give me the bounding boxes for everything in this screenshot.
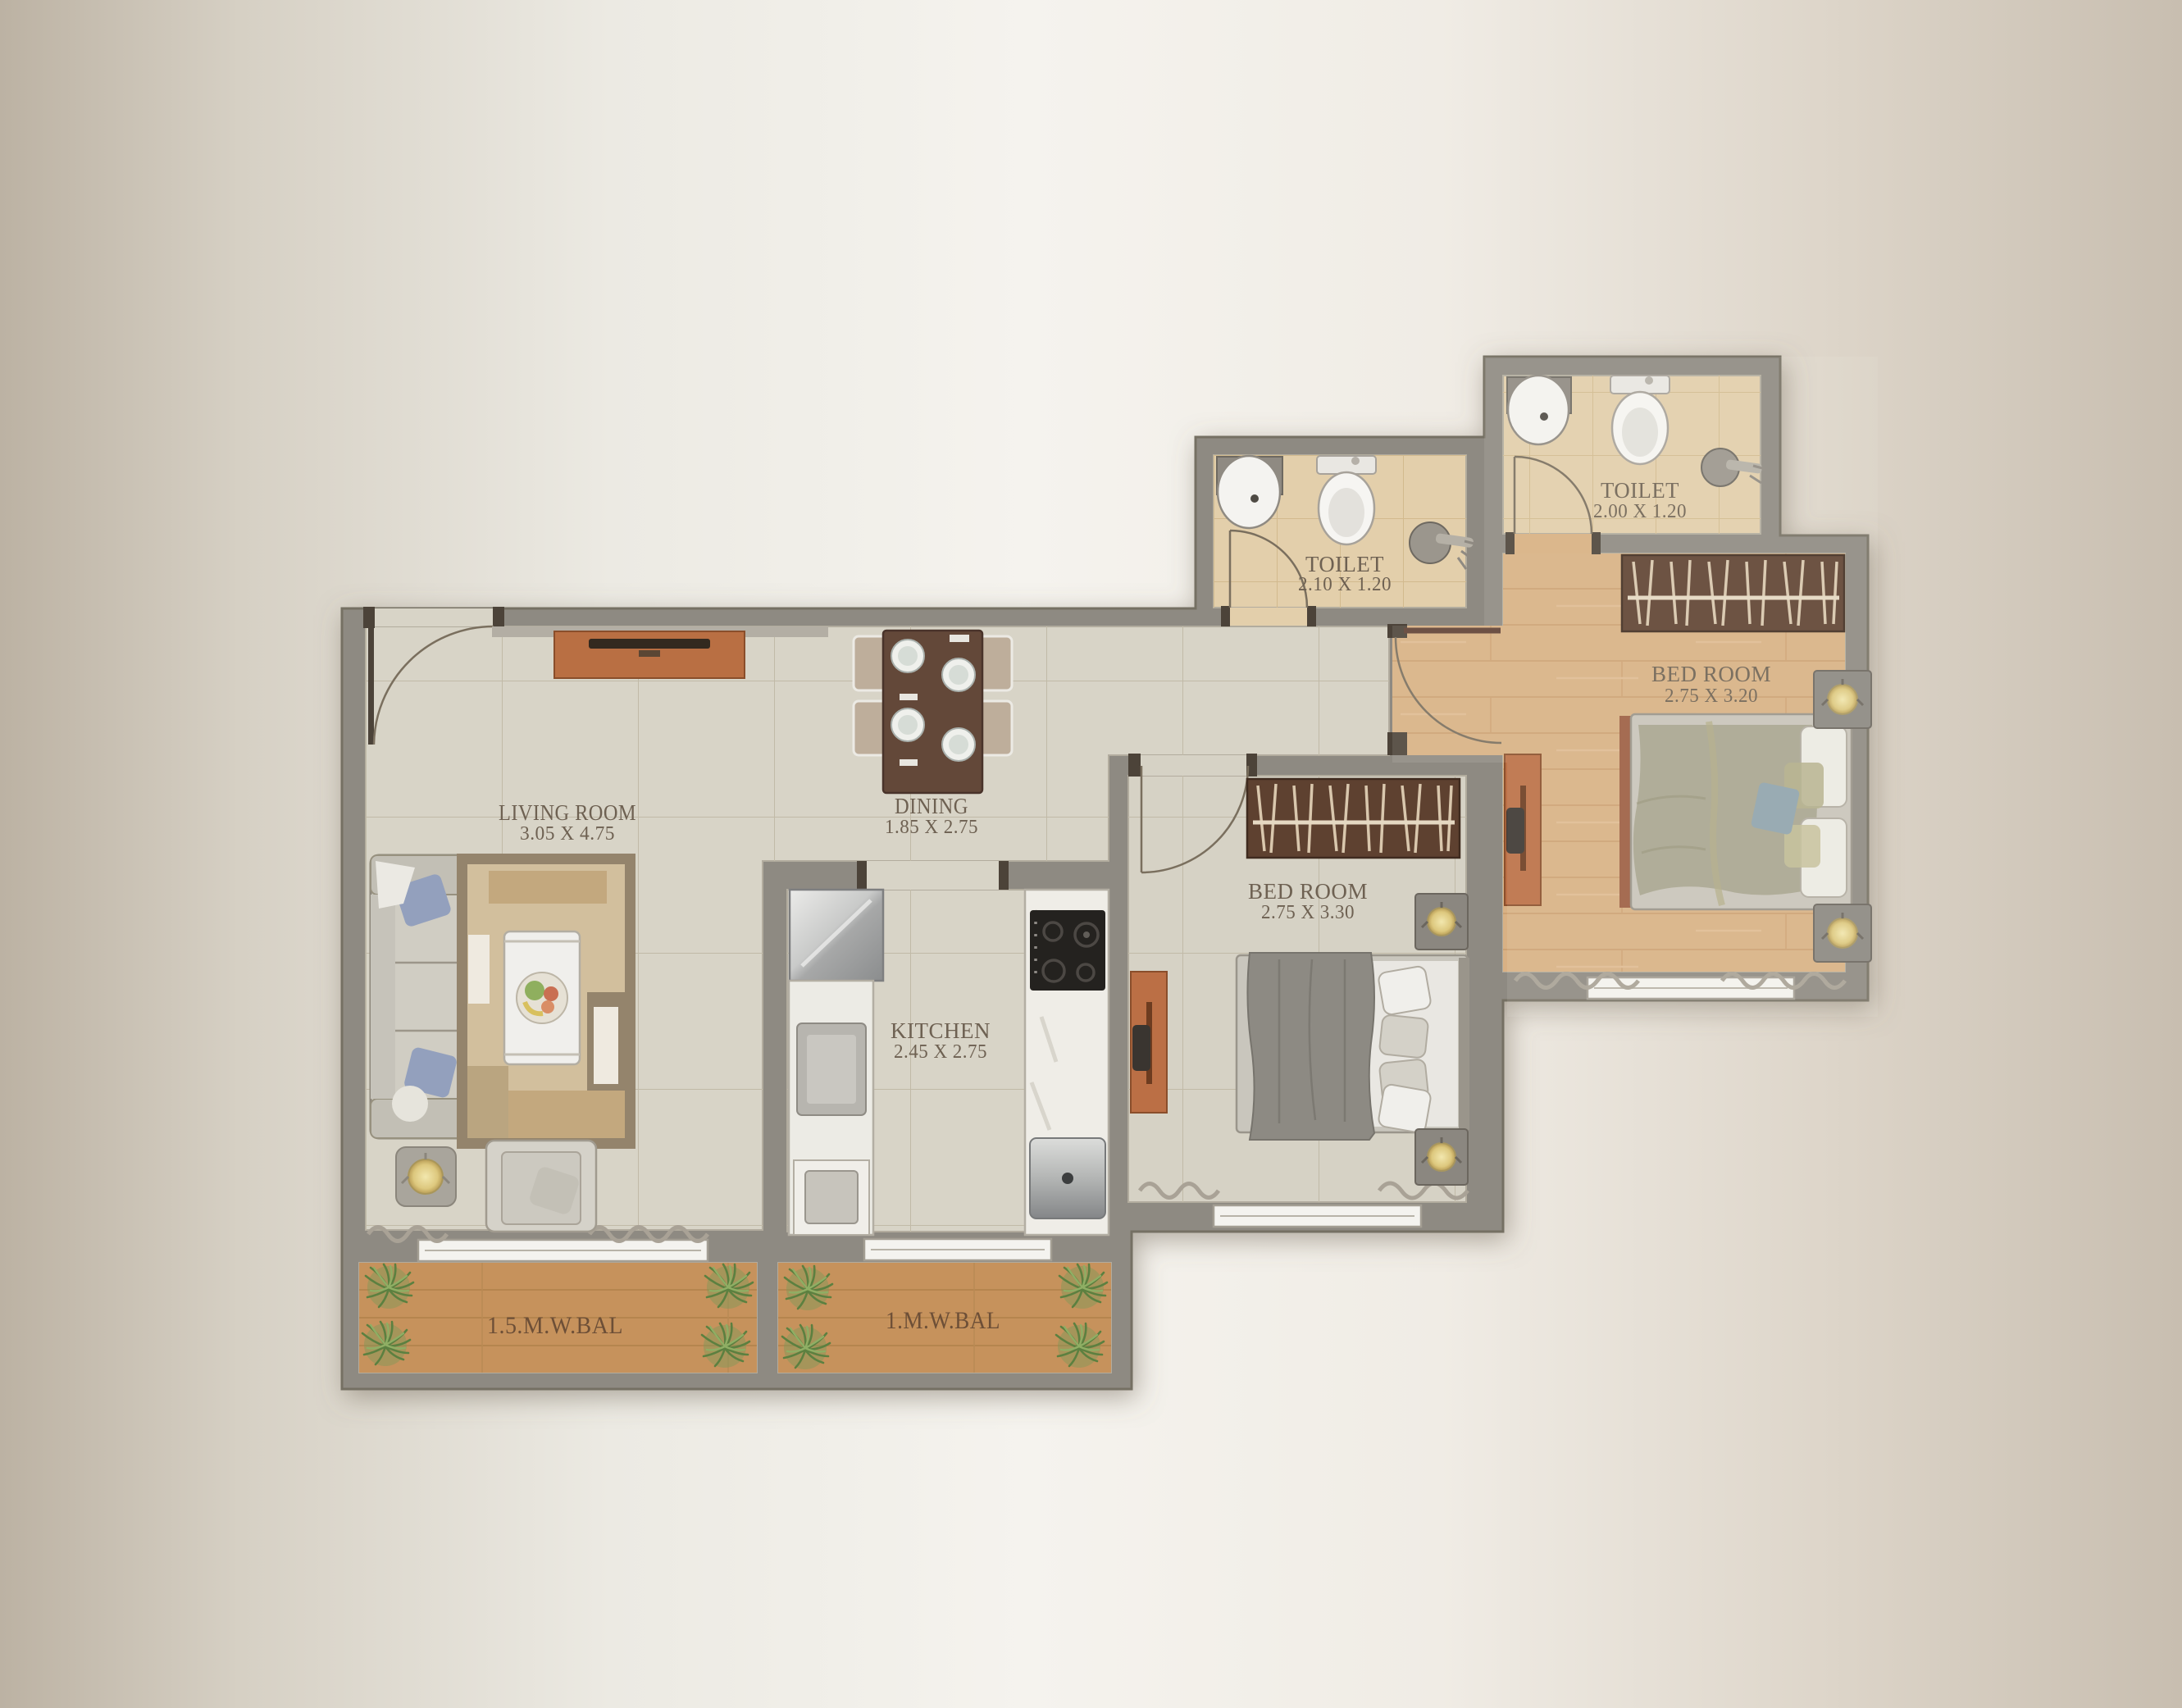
svg-text:LIVING ROOM: LIVING ROOM — [499, 800, 636, 825]
svg-text:3.05 X 4.75: 3.05 X 4.75 — [520, 823, 615, 845]
svg-text:KITCHEN: KITCHEN — [891, 1018, 991, 1043]
svg-text:2.10 X 1.20: 2.10 X 1.20 — [1298, 574, 1392, 595]
svg-text:1.5.M.W.BAL: 1.5.M.W.BAL — [487, 1312, 623, 1339]
svg-text:TOILET: TOILET — [1305, 552, 1384, 576]
svg-text:2.45 X 2.75: 2.45 X 2.75 — [894, 1041, 987, 1063]
svg-text:1.M.W.BAL: 1.M.W.BAL — [886, 1307, 1000, 1334]
svg-text:DINING: DINING — [895, 794, 968, 818]
svg-text:BED ROOM: BED ROOM — [1248, 879, 1368, 904]
svg-text:1.85 X 2.75: 1.85 X 2.75 — [885, 817, 978, 838]
svg-text:2.75 X 3.30: 2.75 X 3.30 — [1261, 902, 1355, 923]
